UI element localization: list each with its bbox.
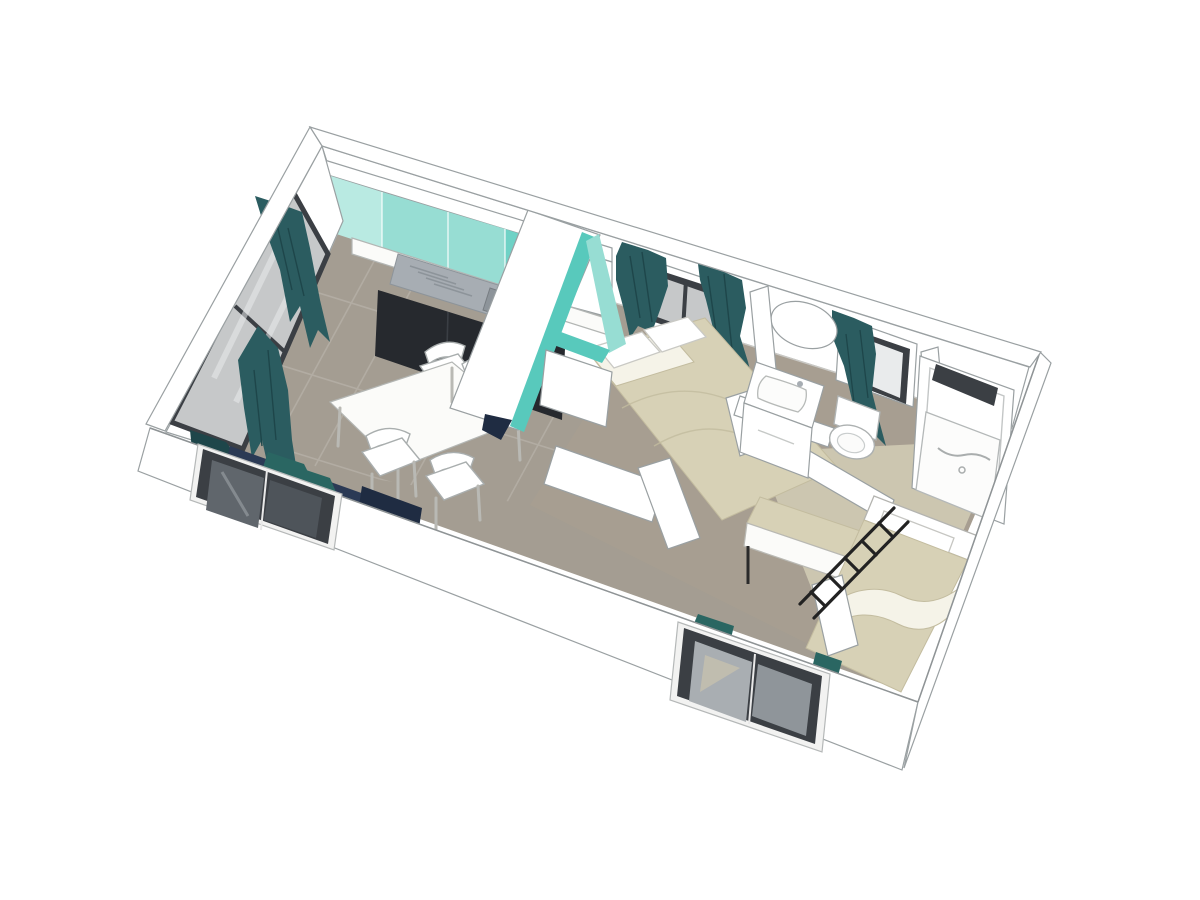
vanity-faucet — [797, 381, 803, 387]
floorplan-3d-render — [0, 0, 1200, 900]
